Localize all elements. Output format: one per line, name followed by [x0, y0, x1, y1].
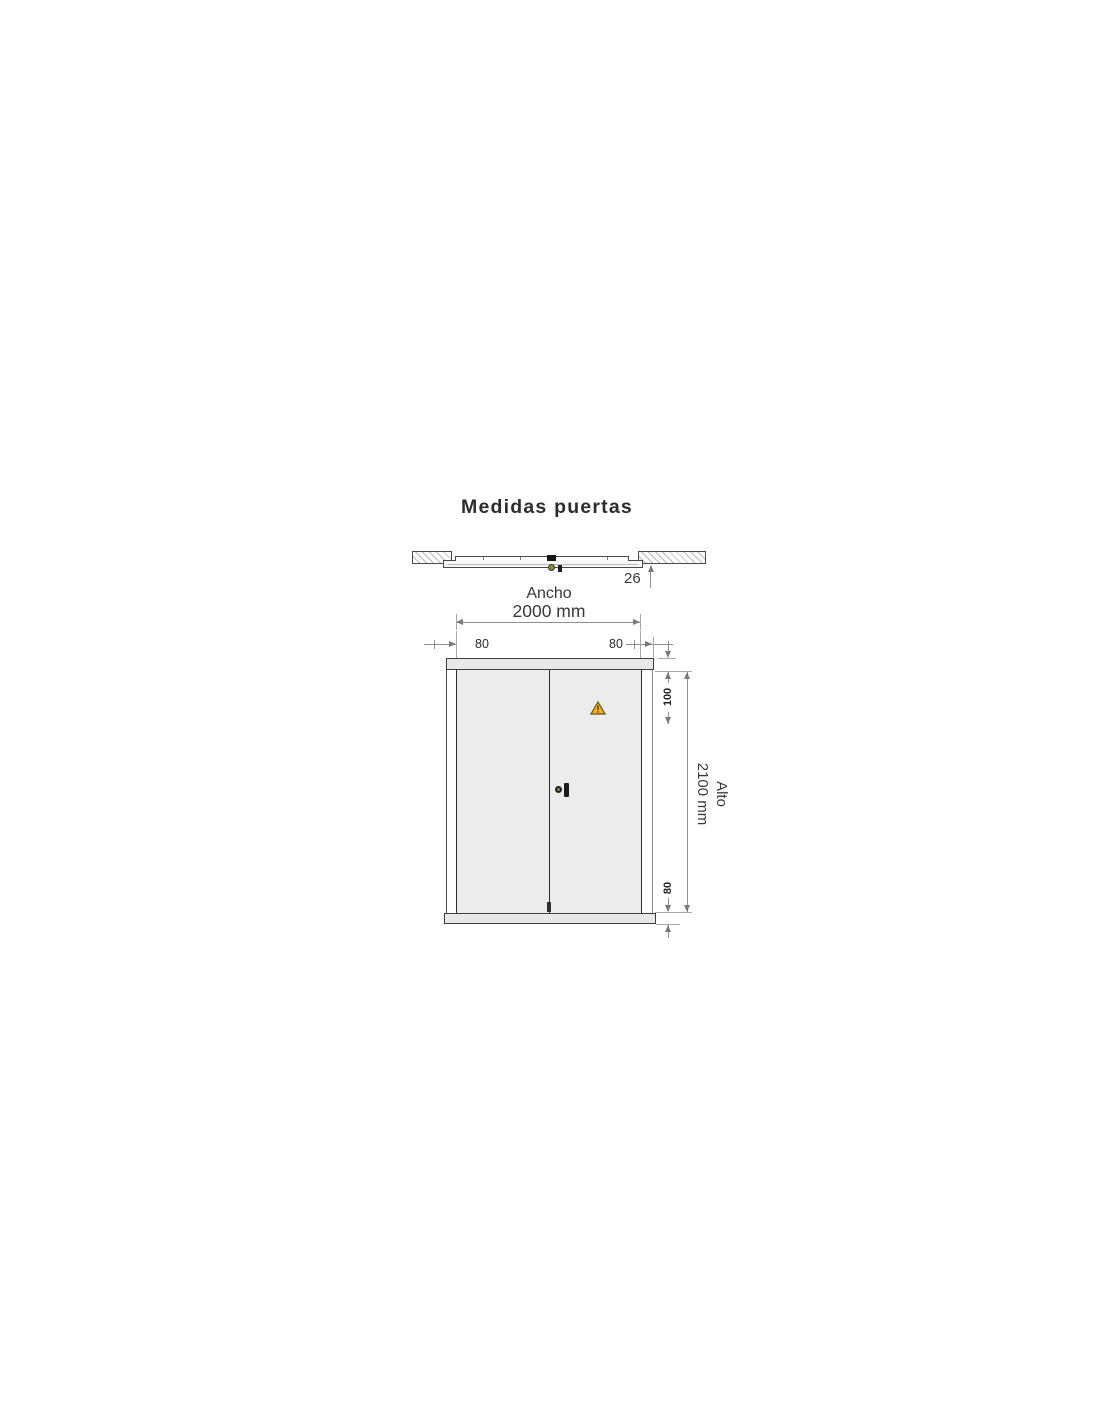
- height-label-block: Alto 2100 mm: [692, 755, 730, 833]
- bottom-rail-height-label: 80: [662, 882, 674, 894]
- door-left-leaf: [456, 670, 549, 913]
- left-frame-dim-arrow-icon: [449, 641, 456, 647]
- door-lock-plate: [564, 783, 569, 797]
- door-measurements-diagram: Medidas puertas 26 Ancho 2000 mm 80 80: [0, 0, 1100, 1422]
- top-rail-extension-line: [658, 658, 676, 659]
- left-frame-dim-tick: [434, 640, 435, 649]
- top-rail-height-label-box: 100: [655, 683, 681, 711]
- height-dim-arrow-down-icon: [684, 905, 690, 912]
- width-dim-extension-right: [640, 614, 641, 630]
- right-frame-extension-line: [640, 631, 641, 658]
- right-frame-dim-arrow-icon: [645, 641, 652, 647]
- door-knob: [555, 786, 562, 793]
- top-rail-dim-arrow-down2-icon: [665, 717, 671, 724]
- top-rail-height-label: 100: [662, 688, 674, 706]
- door-bottom-rail: [444, 913, 656, 924]
- plan-lock-box: [547, 555, 556, 561]
- left-frame-width-label: 80: [470, 637, 494, 651]
- plan-door-panel-top: [455, 556, 629, 561]
- height-label: Alto: [711, 755, 730, 833]
- left-frame-extension-line: [456, 631, 457, 658]
- plan-right-wall: [638, 551, 706, 564]
- plan-hinge-tick: [520, 557, 521, 560]
- height-dim-arrow-up-icon: [684, 672, 690, 679]
- plan-hinge-tick: [607, 557, 608, 560]
- width-value: 2000 mm: [449, 601, 649, 622]
- dim-26-arrow-up-icon: [648, 565, 654, 572]
- width-dim-line: [456, 622, 640, 623]
- warning-triangle-icon: [590, 701, 606, 715]
- door-top-rail: [446, 658, 654, 670]
- door-body-right-edge: [652, 670, 653, 913]
- width-dim-arrow-right-icon: [633, 619, 640, 625]
- door-bottom-extension-line: [655, 912, 692, 913]
- bottom-rail-height-label-box: 80: [655, 876, 681, 900]
- top-rail-dim-arrow-up-icon: [665, 672, 671, 679]
- door-center-divider: [549, 670, 550, 913]
- frame-corner-extension-line: [653, 637, 654, 657]
- page-title: Medidas puertas: [397, 496, 697, 519]
- bottom-rail-dim-arrow-up-icon: [665, 925, 671, 932]
- plan-strike-plate: [558, 565, 562, 572]
- plan-cylinder-dot: [548, 564, 555, 571]
- plan-panel-groove: [448, 564, 638, 565]
- rail-underside-extension-line: [656, 924, 680, 925]
- top-rail-dim-arrow-down-icon: [665, 651, 671, 658]
- width-dim-arrow-left-icon: [456, 619, 463, 625]
- door-flush-bolt: [547, 902, 551, 912]
- height-value: 2100 mm: [693, 755, 712, 833]
- right-frame-width-label: 80: [604, 637, 628, 651]
- bottom-rail-dim-arrow-down-icon: [665, 905, 671, 912]
- width-dim-extension-left: [456, 614, 457, 630]
- door-body-left-edge: [446, 670, 447, 913]
- plan-hinge-tick: [483, 557, 484, 560]
- right-frame-dim-tick: [634, 640, 635, 649]
- height-dim-line: [687, 672, 688, 912]
